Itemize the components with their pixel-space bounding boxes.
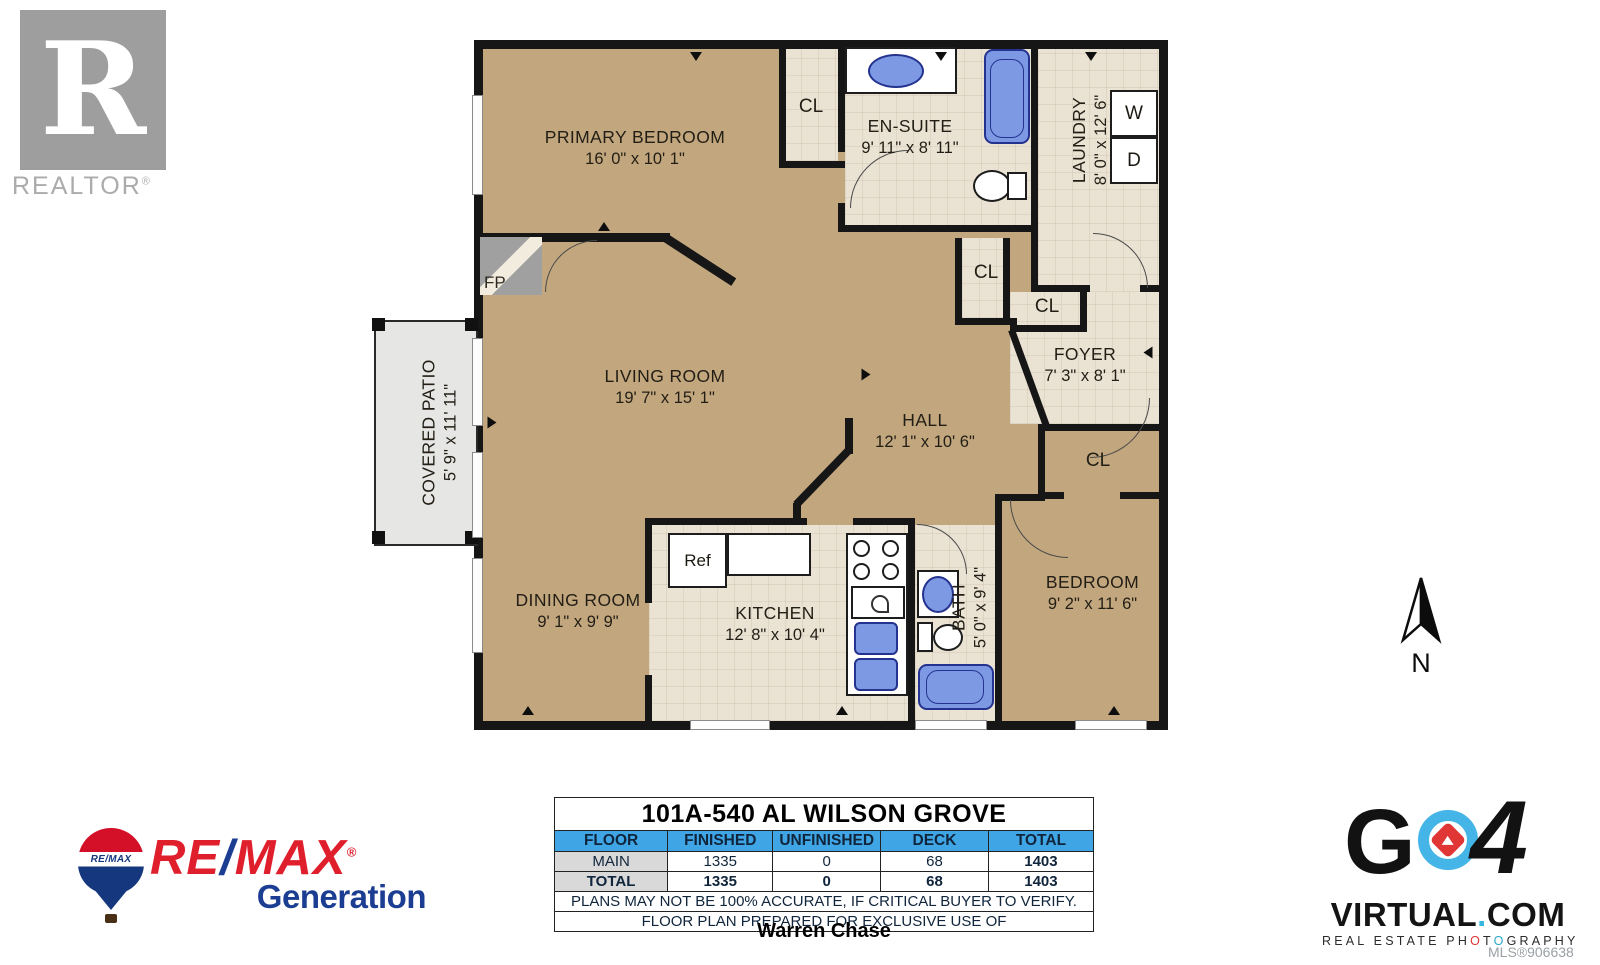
table-row-main: MAIN 1335 0 68 1403: [555, 852, 1094, 872]
window: [472, 95, 483, 195]
cell-finished: 1335: [668, 872, 773, 892]
wall: [1038, 492, 1064, 499]
patio-post: [465, 318, 478, 331]
north-arrow-icon: [1393, 574, 1449, 652]
wall: [645, 675, 652, 722]
door-marker: [488, 417, 497, 429]
door-marker: [1144, 347, 1153, 359]
door-marker: [1108, 706, 1120, 715]
disclaimer-text: PLANS MAY NOT BE 100% ACCURATE, IF CRITI…: [555, 892, 1094, 912]
patio-post: [372, 318, 385, 331]
compass: N: [1383, 574, 1459, 679]
door-marker: [522, 706, 534, 715]
stove-burner: [853, 563, 870, 580]
registered-mark: ®: [142, 176, 152, 188]
col-floor: FLOOR: [555, 831, 668, 852]
window: [472, 558, 483, 653]
col-finished: FINISHED: [668, 831, 773, 852]
toilet: [973, 170, 1011, 202]
cell-unfinished: 0: [773, 852, 881, 872]
floorplan-page: R REALTOR® COVERED PATIO 5' 9" x 11' 11": [0, 0, 1600, 965]
closet-label: CL: [963, 258, 1009, 288]
refrigerator: Ref: [668, 533, 727, 588]
table-header-row: FLOOR FINISHED UNFINISHED DECK TOTAL: [555, 831, 1094, 852]
counter: [727, 533, 811, 576]
col-deck: DECK: [881, 831, 989, 852]
toilet-tank: [917, 622, 933, 652]
toilet-tank: [1007, 172, 1027, 200]
wall: [1031, 40, 1038, 292]
wall: [779, 161, 845, 168]
cell-finished: 1335: [668, 852, 773, 872]
remax-balloon-icon: [93, 888, 129, 910]
wall: [645, 518, 807, 525]
closet-label: CL: [1075, 446, 1121, 476]
wall: [779, 40, 786, 168]
window: [690, 720, 770, 730]
col-unfinished: UNFINISHED: [773, 831, 881, 852]
covered-patio: [374, 320, 478, 546]
kitchen-sink: [854, 658, 898, 691]
cell-deck: 68: [881, 852, 989, 872]
wall: [838, 225, 1038, 232]
window: [472, 338, 483, 426]
window: [915, 720, 987, 730]
stove-burner: [882, 540, 899, 557]
fireplace: FP: [480, 237, 542, 295]
wall: [995, 498, 1002, 722]
sink: [868, 54, 924, 88]
wall: [955, 238, 962, 325]
mls-number: MLS®906638: [1488, 944, 1574, 960]
bathtub: [918, 664, 994, 710]
stove-burner: [853, 540, 870, 557]
cell-floor: MAIN: [555, 852, 668, 872]
table-row-total: TOTAL 1335 0 68 1403: [555, 872, 1094, 892]
camera-aperture-icon: [1418, 810, 1478, 870]
cell-unfinished: 0: [773, 872, 881, 892]
remax-logo: RE/MAX RE/MAX® Generation: [72, 822, 372, 942]
col-total: TOTAL: [988, 831, 1093, 852]
wall: [908, 518, 915, 722]
door-marker: [862, 369, 871, 381]
cell-total: 1403: [988, 872, 1093, 892]
area-summary-table: 101A-540 AL WILSON GROVE FLOOR FINISHED …: [554, 797, 1094, 932]
door-marker: [1085, 52, 1097, 61]
wall: [838, 40, 845, 152]
dryer: D: [1110, 137, 1158, 184]
client-name: Warren Chase: [554, 920, 1094, 943]
wall: [1010, 325, 1087, 332]
patio-post: [372, 531, 385, 544]
remax-generation-label: Generation: [150, 878, 426, 916]
realtor-r-icon: R: [40, 26, 146, 154]
wall: [1120, 492, 1159, 499]
door-marker: [935, 52, 947, 61]
registered-mark: ®: [347, 845, 358, 860]
door-marker: [836, 706, 848, 715]
wall: [1038, 424, 1045, 499]
go4-domain: VIRTUAL.COM: [1322, 896, 1574, 934]
cell-floor: TOTAL: [555, 872, 668, 892]
dishwasher: [851, 586, 905, 619]
bathtub: [984, 49, 1030, 144]
stove-burner: [882, 563, 899, 580]
go4-g: G: [1344, 796, 1416, 888]
remax-balloon-icon: RE/MAX: [78, 828, 144, 894]
cell-deck: 68: [881, 872, 989, 892]
door-marker: [690, 52, 702, 61]
door-marker: [598, 222, 610, 231]
toilet: [933, 624, 963, 651]
faucet-icon: [871, 595, 889, 613]
window: [472, 452, 483, 538]
address-title: 101A-540 AL WILSON GROVE: [555, 798, 1094, 831]
window: [1075, 720, 1147, 730]
wall: [645, 518, 652, 603]
kitchen-sink: [854, 622, 898, 655]
closet-label: CL: [788, 92, 834, 122]
go4-four: 4: [1470, 786, 1528, 890]
closet-label: CL: [1024, 292, 1070, 322]
washer: W: [1110, 90, 1158, 137]
go4-logo: G 4 VIRTUAL.COM REAL ESTATE PHOTOGRAPHY: [1322, 788, 1592, 958]
realtor-wordmark: REALTOR®: [12, 172, 182, 201]
wall: [853, 518, 915, 525]
sink: [922, 576, 954, 613]
remax-balloon-basket: [105, 914, 117, 923]
north-label: N: [1411, 648, 1431, 679]
wall: [1038, 285, 1090, 292]
cell-total: 1403: [988, 852, 1093, 872]
realtor-logo: R: [20, 10, 166, 170]
